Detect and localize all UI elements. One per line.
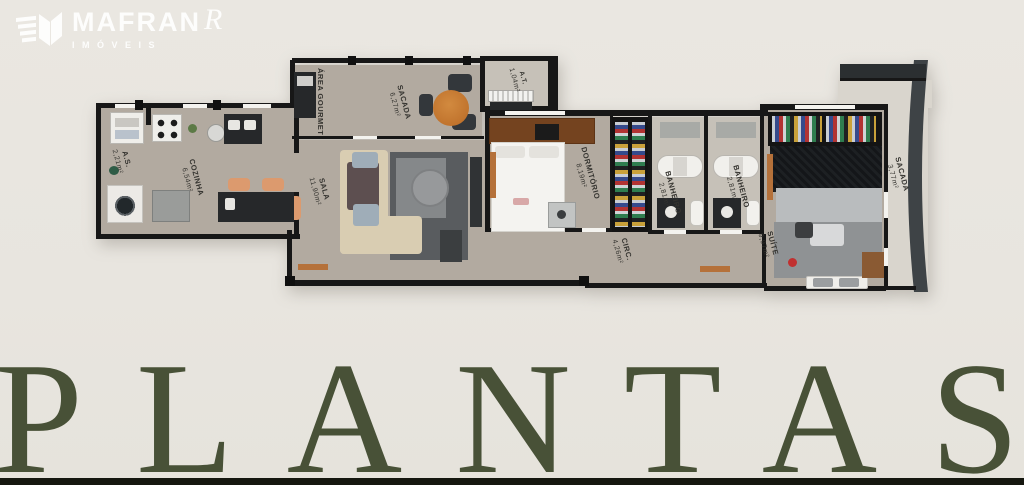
brand-logo: MAFRAN R IMÓVEIS [16, 8, 224, 50]
door-gap [664, 230, 686, 234]
sofa-cushion [352, 152, 378, 168]
wardrobe-clothes [615, 122, 628, 227]
suite-nightstand [862, 252, 884, 278]
dining-chair [228, 178, 250, 191]
page: MAFRAN R IMÓVEIS [0, 0, 1024, 485]
page-title: PLANTAS [0, 338, 1024, 485]
wardrobe-clothes [632, 122, 645, 227]
sliding-door-gap [353, 136, 377, 139]
wall [96, 234, 300, 239]
bench-pillow [813, 278, 833, 287]
wall-stub [146, 105, 151, 125]
wall [548, 56, 558, 108]
window [183, 104, 207, 108]
door-gap [582, 228, 606, 232]
window [505, 111, 565, 115]
window [795, 105, 855, 109]
wall [292, 58, 484, 63]
mafran-logo-icon [16, 8, 64, 50]
tv-panel [470, 157, 482, 227]
coffee-table [411, 169, 449, 207]
wall [287, 280, 587, 286]
shower-niche [660, 122, 700, 138]
ac-unit-base [490, 102, 532, 110]
wall-pier [213, 100, 221, 110]
door-gap [884, 192, 888, 218]
hallway-shelf [700, 266, 730, 272]
sliding-door-gap [415, 136, 441, 139]
table-decor [225, 198, 235, 210]
wall-pier [405, 56, 413, 65]
stove [152, 114, 182, 142]
floor-plan: A.S. 2,21m² COZINHA 6,54m² ÁREA GOURMET … [95, 52, 940, 297]
brand-name: MAFRAN [72, 9, 201, 36]
bedroom-door [490, 152, 496, 198]
bench-pillow [839, 278, 859, 287]
suite-pillow [810, 224, 844, 246]
parapet-wall [840, 64, 926, 78]
wall-pier [579, 276, 589, 286]
suite-headboard [770, 146, 882, 192]
desk-laptop [535, 124, 559, 140]
wall [760, 104, 764, 234]
brand-text: MAFRAN R IMÓVEIS [72, 9, 224, 50]
bed-pillow [495, 146, 525, 158]
sink-bowl [244, 120, 256, 130]
grill-top [297, 76, 313, 86]
faucet [207, 124, 225, 142]
bathtub-band [673, 157, 687, 176]
room-label-area-gourmet: ÁREA GOURMET [315, 68, 325, 135]
door-gap [884, 248, 888, 266]
brand-tagline: IMÓVEIS [72, 40, 224, 50]
balcony-railing [292, 136, 484, 139]
wall-pier [135, 100, 143, 110]
brand-suffix: R [204, 5, 224, 35]
balcony-table [433, 90, 469, 126]
wall [840, 78, 926, 81]
wall [884, 286, 916, 290]
suite-door [767, 154, 773, 200]
pouf-detail [557, 210, 566, 219]
wall [480, 56, 485, 108]
sofa-cushion [353, 204, 379, 226]
washing-machine [107, 185, 143, 223]
laundry-tank-basin [115, 130, 139, 139]
refrigerator [152, 190, 190, 222]
suite-decor [788, 258, 797, 267]
laundry-tank-basin [115, 118, 139, 127]
ac-condenser [488, 90, 534, 102]
sideboard [440, 230, 462, 262]
shower-niche [716, 122, 756, 138]
hallway-floor [585, 230, 767, 283]
bed-throw [513, 198, 529, 205]
suite-pillow-dark [795, 222, 813, 238]
window [243, 104, 271, 108]
wall [96, 103, 101, 239]
wall-pier [463, 56, 471, 65]
wall [648, 110, 652, 234]
dining-chair [262, 178, 284, 191]
bed-pillow [529, 146, 559, 158]
wall-pier [285, 276, 295, 286]
suite-closet-clothes [772, 116, 822, 142]
toilet [690, 200, 704, 226]
suite-closet-clothes [826, 116, 876, 142]
plant [188, 124, 197, 133]
bottom-bar [0, 478, 1024, 485]
entry-door [298, 264, 328, 270]
wall [585, 283, 767, 288]
wall [704, 110, 708, 234]
door-gap [720, 230, 742, 234]
sink-bowl [228, 120, 240, 130]
wall [480, 56, 558, 61]
wall-pier [348, 56, 356, 65]
laundry-tank [110, 112, 144, 144]
balcony-chair [419, 94, 433, 116]
sofa-cushion [347, 162, 379, 210]
vanity-sink [721, 206, 733, 218]
